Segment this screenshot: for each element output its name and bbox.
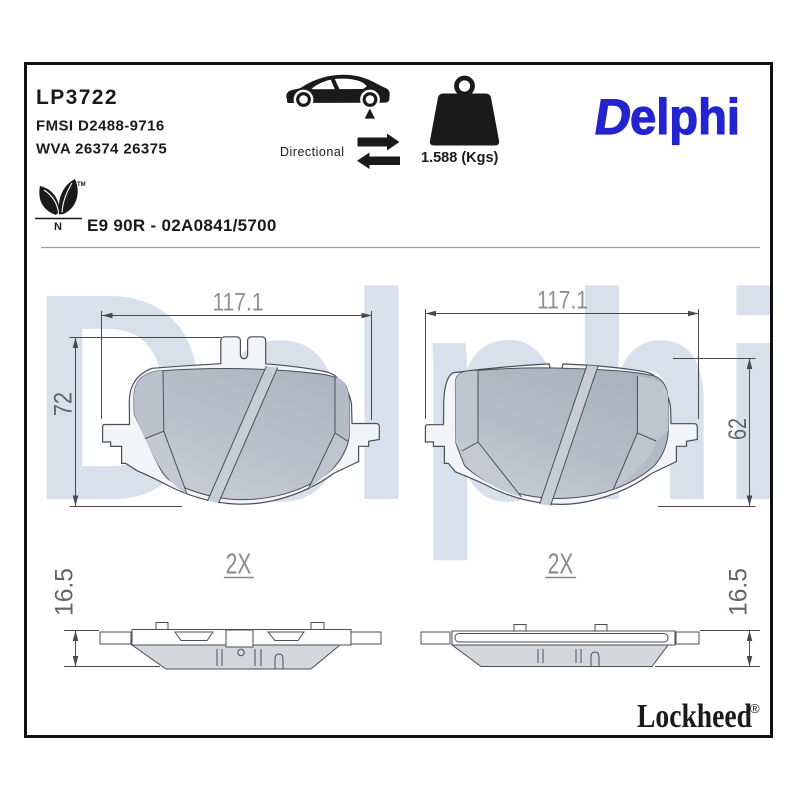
svg-text:E9 90R - 02A0841/5700: E9 90R - 02A0841/5700 [87, 216, 277, 235]
svg-text:72: 72 [50, 392, 78, 416]
svg-text:FMSI D2488-9716: FMSI D2488-9716 [36, 118, 165, 135]
svg-text:16.5: 16.5 [725, 568, 753, 616]
svg-text:16.5: 16.5 [51, 568, 79, 616]
svg-text:1.588 (Kgs): 1.588 (Kgs) [421, 150, 499, 166]
svg-text:62: 62 [724, 418, 752, 440]
svg-text:Lockheed: Lockheed [637, 698, 752, 735]
svg-text:elphi: elphi [630, 89, 740, 145]
svg-text:2X: 2X [226, 548, 252, 580]
svg-text:2X: 2X [548, 548, 574, 580]
svg-text:N: N [54, 221, 62, 233]
svg-text:117.1: 117.1 [537, 287, 588, 315]
svg-text:WVA 26374 26375: WVA 26374 26375 [36, 141, 167, 158]
svg-text:LP3722: LP3722 [36, 86, 118, 109]
svg-text:117.1: 117.1 [213, 289, 264, 317]
svg-text:®: ® [750, 701, 760, 716]
svg-text:TM: TM [77, 182, 86, 188]
svg-text:Directional: Directional [280, 145, 345, 159]
